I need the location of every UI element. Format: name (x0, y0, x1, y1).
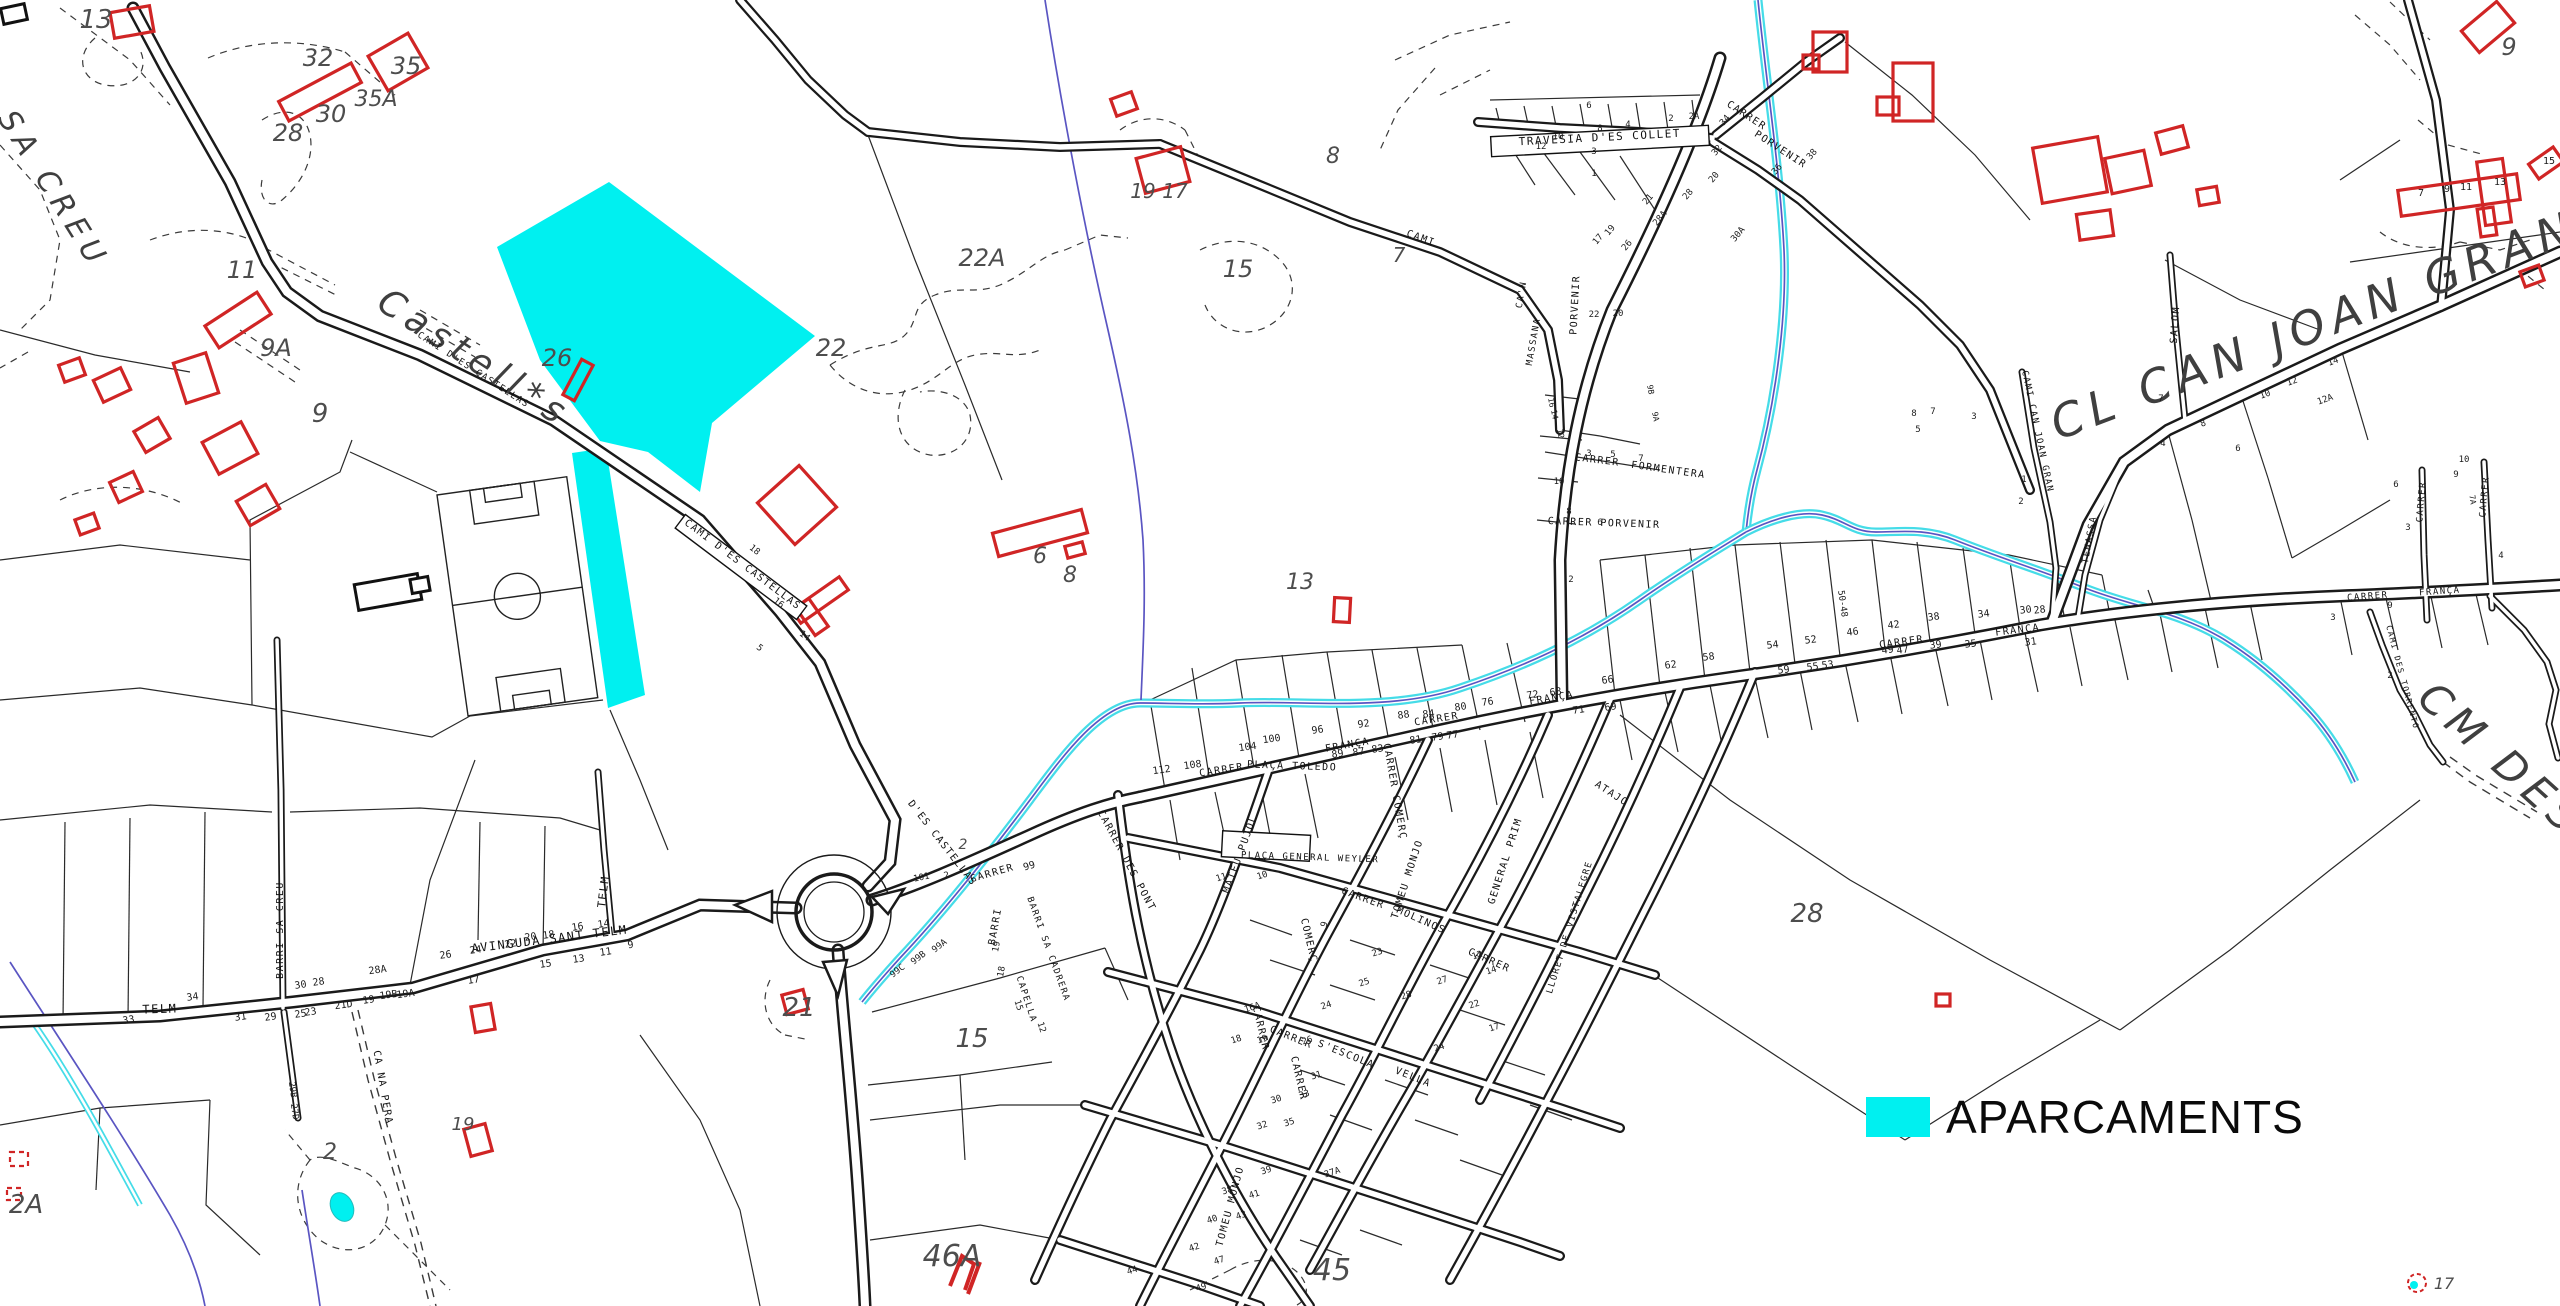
road-surface (1716, 38, 1840, 135)
house-number: 99B (909, 949, 928, 967)
house-number: 26 (1620, 238, 1635, 253)
house-number: 35 (1964, 638, 1977, 650)
house-number: 31 (234, 1011, 247, 1024)
parcel-line (1620, 715, 2120, 1030)
watercourse-line (1045, 0, 1144, 700)
building-outline (1333, 598, 1350, 623)
house-number: 5 (1915, 425, 1920, 435)
house-number: 27D (288, 1103, 300, 1120)
parcel-line (1600, 436, 1640, 444)
house-number: 19A (396, 988, 415, 1001)
parcel-line (1540, 148, 1575, 195)
parcel-line (2242, 398, 2268, 478)
building-outline (2197, 186, 2219, 205)
parcel-line (1440, 748, 1452, 812)
house-number: 2 (2018, 497, 2023, 507)
well-water-dot (2410, 1281, 2418, 1289)
house-number: 59 (1777, 664, 1790, 676)
building-outline (2033, 137, 2108, 204)
house-number: 80 (1454, 701, 1467, 714)
house-number: 17 (1591, 232, 1606, 247)
parcel-line (1735, 545, 1750, 672)
parcel-line (2475, 590, 2488, 645)
parcel-line (128, 818, 130, 1020)
house-number: 11 (2460, 182, 2472, 193)
house-number: 53 (1821, 659, 1834, 671)
house-number: 7 (1638, 454, 1643, 464)
parcel-line (0, 330, 190, 372)
parcel-line (1500, 1060, 1545, 1075)
house-number: 9B (1645, 384, 1656, 395)
house-number: 9 (2444, 184, 2450, 195)
house-number: 12 (1034, 1021, 1047, 1034)
parcel-number: 11 (227, 256, 258, 284)
parcel-line (470, 700, 603, 716)
house-number: 20 (1707, 170, 1722, 185)
building-outline (1936, 994, 1950, 1006)
house-number: 35 (1283, 1117, 1296, 1130)
parcel-line (1150, 645, 1462, 700)
house-number: 9A (1650, 411, 1661, 422)
boundary-dashed (150, 230, 262, 245)
house-number: 68 (1549, 686, 1562, 699)
parcel-number: 17 (2434, 1274, 2455, 1293)
house-number: 12A (2316, 392, 2335, 407)
house-number: 47 (1213, 1255, 1226, 1268)
boundary-dashed (1395, 22, 1510, 60)
map-viewport: SA CREUCastell*sCL CAN JOAN GRANCM DESAV… (0, 0, 2560, 1306)
house-number: 28 (1681, 187, 1696, 202)
boundary-dashed (1065, 235, 1128, 250)
road-casing (133, 8, 895, 886)
house-number: 47 (1896, 644, 1909, 656)
street-label: SA CREU (0, 104, 116, 276)
house-number: 19 (362, 994, 375, 1007)
parcel-number: 2A (9, 1190, 43, 1220)
parcel-line (2340, 140, 2400, 180)
house-number: 23 (1371, 947, 1384, 960)
house-number: 9 (2453, 470, 2458, 480)
parcel-line (1780, 542, 1795, 664)
house-number: 4 (1625, 120, 1630, 130)
boundary-dashed (0, 352, 28, 368)
parcel-line (1580, 152, 1615, 200)
house-number: 16 (571, 921, 584, 934)
parcel-line (2115, 620, 2128, 680)
house-number: 21 (1641, 192, 1656, 207)
house-number: 96 (1311, 724, 1324, 737)
house-number: 50-48 (1835, 590, 1849, 618)
house-number: 46 (1846, 626, 1859, 638)
house-number: 92 (1357, 718, 1370, 731)
house-number: 21D (334, 999, 353, 1012)
house-number: 24 (1433, 1042, 1446, 1055)
house-number: 8 (1566, 507, 1571, 517)
house-number: 12 (1555, 428, 1566, 439)
house-number: 19 (1603, 223, 1618, 238)
parcel-number: 35A (354, 87, 397, 112)
parcel-number: 9A (260, 334, 292, 362)
parcel-line (1800, 670, 1812, 730)
parcel-line (350, 452, 437, 492)
house-number: 14 (597, 918, 610, 931)
parcel-number: 22 (816, 334, 847, 362)
road-casing (1160, 144, 1560, 430)
parcel-number: 15 (1223, 255, 1254, 283)
house-number: 12 (1536, 142, 1547, 152)
boundary-dashed (898, 390, 971, 455)
house-number: 10 (1256, 870, 1269, 883)
house-number: 25 (1358, 977, 1371, 990)
house-number: 72 (1526, 689, 1539, 702)
house-number: 2A (1689, 112, 1700, 122)
house-number: 28 (2033, 604, 2046, 616)
street-label: CARRER (2415, 481, 2429, 523)
street-label: BARRI (987, 907, 1004, 946)
house-number: 7 (2158, 394, 2163, 404)
house-number: 14 (1549, 409, 1560, 420)
parcel-line (610, 710, 668, 850)
parcel-line (1645, 555, 1660, 687)
road-surface (0, 905, 796, 1022)
parcel-line (206, 1100, 260, 1255)
boundary-dashed (785, 1035, 810, 1040)
house-number: 28 (312, 976, 325, 989)
house-number: 6 (1597, 518, 1602, 528)
building-outline (1877, 97, 1899, 115)
boundary-dashed (1380, 68, 1435, 150)
house-number: 1 (1591, 169, 1596, 179)
parcel-number: 6 (1033, 544, 1047, 569)
field-penalty-box (496, 669, 565, 712)
house-number: 15 (539, 958, 552, 971)
layer-field (437, 477, 598, 716)
road-surface (284, 1012, 298, 1118)
parcel-number: 28 (273, 119, 304, 147)
parcel-number: 8 (1063, 563, 1077, 588)
house-number: 89 (1331, 748, 1344, 761)
street-label: TELM (142, 1001, 177, 1016)
house-number: 8 (1911, 409, 1916, 419)
house-number: 29 (264, 1011, 277, 1024)
house-number: 30 (1270, 1094, 1283, 1107)
house-number: 27 (1436, 975, 1449, 988)
pond (326, 1189, 359, 1225)
parcel-line (1460, 1160, 1502, 1175)
boundary-dashed (83, 38, 143, 86)
parcel-line (0, 688, 252, 705)
house-number: 3 (1591, 147, 1596, 157)
house-number: 8 (1597, 124, 1602, 134)
parcel-number: 32 (303, 44, 334, 72)
house-number: 71 (1572, 704, 1585, 717)
house-number: 24 (469, 944, 482, 957)
house-number: 22 (504, 938, 517, 951)
parcel-line (0, 1100, 210, 1125)
layer-roundabout (735, 855, 904, 996)
building-outline (59, 358, 86, 382)
traffic-island (735, 891, 772, 922)
house-number: 99A (930, 937, 949, 955)
street-label: CARRER (2347, 591, 2389, 604)
house-number: 41 (1248, 1189, 1261, 1202)
building-outline (2076, 210, 2113, 240)
house-number: 30 (294, 979, 307, 992)
house-number: 88 (1397, 709, 1410, 722)
parcel-number: 19 (1130, 179, 1155, 203)
parcel-number: 19 (452, 1114, 475, 1135)
field-goal-box (484, 483, 523, 502)
house-number: 58 (1702, 651, 1715, 663)
house-number: 39 (1260, 1165, 1273, 1178)
legend-parking-swatch (1866, 1097, 1930, 1137)
house-number: 55 (1806, 661, 1819, 673)
street-label: MASSANA (1525, 317, 1543, 366)
building-outline (2156, 126, 2189, 154)
parcel-number: 9 (312, 399, 329, 429)
parcel-line (1890, 654, 1902, 714)
house-number: 3 (2405, 523, 2410, 533)
parcel-number: 28 (1790, 899, 1823, 929)
parcel-line (1845, 42, 2030, 220)
street-label: COMERÇ (1298, 917, 1319, 963)
house-number: 40 (1206, 1214, 1219, 1227)
street-label: CL CAN JOAN GRAN (2043, 199, 2560, 450)
building-outline-black (410, 577, 430, 594)
house-number: 7 (2418, 188, 2424, 199)
street-label: CA NA PERA (371, 1050, 395, 1126)
parcel-line (1305, 774, 1318, 838)
house-number: 5 (754, 643, 764, 654)
parcel-line (1236, 660, 1255, 774)
parcel-line (1330, 985, 1375, 1000)
parcel-line (2340, 597, 2352, 655)
house-number: 2 (2387, 671, 2392, 681)
house-number: 22 (1468, 999, 1481, 1012)
house-number: 52 (1804, 634, 1817, 646)
parcel-line (1608, 104, 1612, 127)
house-number: 42 (1887, 619, 1900, 631)
parcel-line (2430, 592, 2442, 648)
stream-center (1746, 514, 2355, 782)
house-number: 3 (2330, 613, 2335, 623)
roundabout-ring (804, 882, 864, 942)
house-number: 3 (1586, 449, 1591, 459)
parcel-line (1980, 640, 1992, 700)
house-number: 12 (2286, 376, 2300, 389)
football-field (437, 477, 598, 716)
building-outline (93, 368, 130, 402)
building-outline-black (1, 4, 28, 25)
parcel-line (870, 1105, 1085, 1120)
building-outline (173, 353, 218, 403)
house-number: 18 (1230, 1034, 1243, 1047)
house-number: 4 (2498, 551, 2503, 561)
house-number: 2 (1668, 114, 1673, 124)
parcel-line (2070, 627, 2082, 686)
house-number: 26 (1301, 1035, 1314, 1048)
house-number: 24 (1320, 1000, 1333, 1013)
parcel-line (1620, 700, 1632, 760)
road-casing (0, 905, 796, 1022)
house-number: 77 (1446, 729, 1459, 742)
parcel-number: 21 (782, 993, 815, 1023)
parcel-line (63, 822, 65, 1022)
legend-parking-label: APARCAMENTS (1946, 1094, 2304, 1140)
house-number: 34 (186, 991, 199, 1004)
parcel-number: 8 (1326, 144, 1340, 169)
field-penalty-box (470, 481, 539, 524)
parcel-number: 45 (1313, 1253, 1351, 1288)
house-number: 39 (1929, 639, 1942, 651)
house-number: 10 (2459, 455, 2470, 465)
parcel-line (1755, 678, 1768, 738)
road-surface (1060, 1240, 1260, 1306)
house-number: 79 (1431, 731, 1444, 744)
house-number: 66 (1601, 674, 1614, 687)
parcel-line (0, 545, 250, 560)
house-number: 18 (747, 543, 762, 558)
house-number: 29B (286, 1081, 298, 1098)
house-number: 16 (1546, 397, 1557, 408)
parcel-line (1360, 1230, 1402, 1245)
parcel-line (1636, 103, 1640, 128)
house-number: 62 (1664, 659, 1677, 671)
street-label: BARRI SA CADRERA (1024, 896, 1071, 1003)
field-halfway-line (453, 587, 583, 605)
house-number: 2 (1568, 575, 1573, 585)
parcel-line (1415, 1120, 1458, 1135)
parcel-line (0, 805, 272, 820)
building-outline (1065, 542, 1085, 558)
aparcament-camp-futbol (572, 448, 645, 708)
street-label: LLORET DE VISTALEGRE (1545, 860, 1595, 995)
parcel-number: 46A (923, 1239, 982, 1274)
road-casing (1450, 672, 1755, 1280)
parcel-line (1282, 655, 1300, 764)
house-number: 17 (467, 974, 480, 987)
house-number: 4 (2160, 439, 2165, 449)
parcel-line (1963, 548, 1975, 634)
house-number: 7A (2467, 494, 2477, 505)
building-outline (2105, 150, 2152, 194)
house-number: 13 (2494, 177, 2506, 188)
house-number: 69 (1604, 701, 1617, 714)
road-surface (868, 132, 1160, 147)
house-number: 22 (1589, 310, 1600, 320)
parcel-number: 17 (1162, 179, 1188, 203)
roundabout-ring (796, 874, 872, 950)
house-number: 112 (1152, 764, 1171, 777)
house-number: 15 (1011, 999, 1024, 1012)
house-number: 26 (439, 949, 452, 962)
house-number: 18 (996, 965, 1008, 977)
building-outline (236, 484, 279, 525)
stream-center (1140, 532, 1746, 704)
building-outline (757, 465, 836, 544)
house-number: 8 (2199, 418, 2208, 429)
house-number: 5 (1610, 450, 1615, 460)
parcel-line (2342, 352, 2368, 440)
parcel-number: 2 (323, 1140, 337, 1165)
street-label: BARRI SA CREU (275, 881, 286, 979)
house-number: 83 (1371, 743, 1384, 756)
stream-torrent (1140, 532, 1746, 704)
house-number: 104 (1238, 741, 1257, 754)
house-number: 9 (627, 940, 635, 952)
house-number: 18 (542, 929, 555, 942)
house-number: 15 (2543, 156, 2555, 167)
road-surface (838, 950, 865, 1306)
house-number: 32 (1256, 1120, 1269, 1133)
house-number: 28A (368, 964, 387, 977)
house-number: 31 (1310, 1070, 1323, 1083)
boundary-dashed (285, 1130, 310, 1160)
parcel-number: 2 (959, 837, 968, 853)
parcel-number: 13 (1286, 570, 1314, 595)
parcel-line (1845, 662, 1858, 722)
parcel-line (870, 1225, 1060, 1240)
house-number: 100 (1262, 733, 1281, 746)
road-surface (1310, 695, 1612, 1270)
stream-torrent (1746, 514, 2355, 782)
building-outline (1111, 92, 1138, 116)
house-number: 23 (304, 1006, 317, 1019)
road-surface (133, 8, 895, 886)
parcel-line (868, 135, 1002, 480)
parcel-line (2160, 614, 2172, 672)
house-number: 38 (1927, 611, 1940, 623)
parcel-line (1250, 920, 1292, 935)
parcel-number: 30 (316, 100, 347, 128)
house-number: 20 (1613, 309, 1624, 319)
parcel-line (290, 808, 600, 830)
boundary-dashed (830, 350, 1040, 394)
house-number: 42 (1188, 1242, 1201, 1255)
house-number: 10 (1554, 477, 1565, 487)
stream-line (1140, 532, 1746, 704)
house-number: 6 (2235, 444, 2240, 454)
parcel-number: 7 (1393, 243, 1406, 267)
parcel-line (2120, 800, 2420, 1030)
parcel-line (2192, 520, 2212, 605)
parcel-line (478, 822, 480, 940)
dirt-road-dashed (358, 1010, 436, 1306)
house-number: 9 (2387, 601, 2392, 611)
house-number: 87 (1352, 746, 1365, 759)
parcel-line (2168, 432, 2192, 520)
house-number: 7 (1930, 407, 1935, 417)
house-number: 11 (599, 946, 612, 959)
parcel-number: 26 (542, 344, 573, 372)
street-label: CM DES (2409, 672, 2560, 847)
house-number: 13 (572, 953, 585, 966)
parcel-line (2268, 478, 2292, 558)
house-number: 19 (991, 940, 1003, 952)
house-number: 54 (1766, 639, 1779, 651)
building-outline (75, 513, 99, 535)
house-number: 99 (1022, 860, 1037, 874)
boundary-dashed (2418, 120, 2485, 155)
parcel-line (960, 1075, 965, 1160)
parcel-number: 9 (2501, 33, 2516, 61)
parcel-line (2292, 500, 2390, 558)
house-number: 33 (122, 1014, 135, 1027)
parcel-number: 15 (955, 1024, 988, 1054)
building-outline (202, 422, 258, 474)
parcel-number: 35 (391, 52, 422, 80)
parcel-line (203, 812, 205, 1008)
